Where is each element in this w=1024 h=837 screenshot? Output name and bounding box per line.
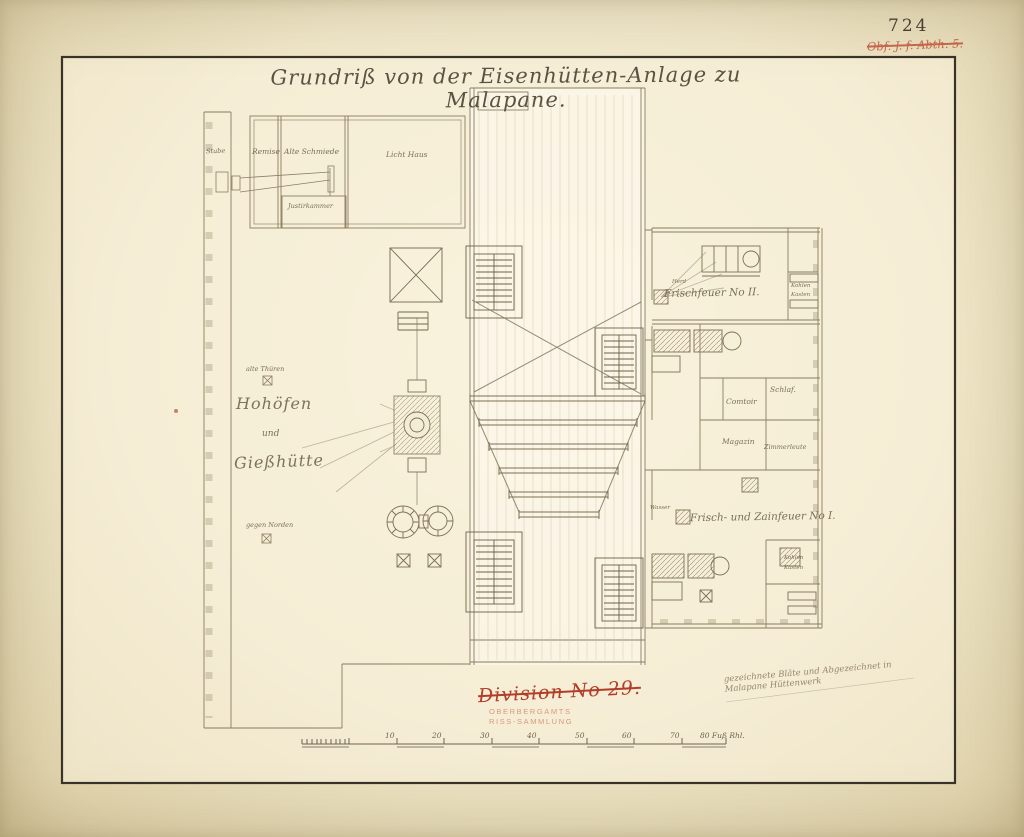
room-label-zimmerleute: Zimmerleute — [764, 444, 806, 451]
stamp-line-1: OBERBERGAMTS — [489, 707, 573, 717]
scale-tick-50: 50 — [575, 731, 585, 740]
room-label-magazin: Magazin — [722, 438, 755, 446]
room-label-und: und — [262, 430, 279, 439]
archive-stamp: OBERBERGAMTS RISS-SAMMLUNG — [489, 707, 573, 727]
scale-tick-30: 30 — [480, 731, 490, 740]
scale-bar — [302, 738, 726, 747]
grate-blocks — [466, 246, 643, 628]
room-label-justirkammer: Justirkammer — [288, 203, 333, 210]
scale-tick-20: 20 — [432, 731, 442, 740]
room-label-stube: Stube — [206, 148, 225, 155]
room-label-kohlen-top: Kohlen — [791, 284, 810, 290]
room-label-alte-thueren: alte Thüren — [246, 366, 284, 373]
drawing-title: Grundriß von der Eisenhütten-Anlage zu M… — [248, 62, 764, 114]
room-label-comtoir: Comtoir — [726, 398, 757, 406]
room-label-kasten-top: Kasten — [791, 293, 810, 299]
room-label-schlaf: Schlaf. — [770, 386, 796, 394]
scale-tick-10: 10 — [385, 731, 395, 740]
scale-tick-40: 40 — [527, 731, 537, 740]
top-left-rooms — [250, 116, 465, 228]
archive-number: 724 — [888, 16, 929, 36]
room-label-giesshuette: Gießhütte — [234, 452, 325, 471]
scale-end-label: 80 Fuß Rhl. — [700, 731, 745, 740]
cupola-furnaces — [387, 506, 453, 567]
room-label-kohlen-bottom: Kohlen — [784, 556, 803, 562]
red-ink-speck — [174, 409, 178, 413]
room-label-hohoefen: Hohöfen — [236, 396, 312, 412]
scale-tick-70: 70 — [670, 731, 680, 740]
room-label-alte-schmiede: Alte Schmiede — [284, 148, 339, 156]
room-label-licht-haus: Licht Haus — [386, 151, 428, 159]
room-label-remise: Remise — [252, 148, 280, 156]
room-label-frischfeuer-1: Frisch- und Zainfeuer No I. — [690, 511, 836, 524]
stair-block — [390, 248, 442, 330]
smithy-mechanism-sketch — [216, 166, 334, 196]
room-label-gegen-norden: gegen Norden — [246, 522, 293, 529]
room-label-herd: Herd — [672, 280, 686, 286]
room-label-wasser: Wasser — [650, 506, 670, 512]
scale-tick-60: 60 — [622, 731, 632, 740]
room-label-frischfeuer-2: Frischfeuer No II. — [664, 287, 760, 299]
drawing-sheet: 724 Obf. J. f. Abth. 5. Grundriß von der… — [0, 0, 1024, 837]
room-label-kasten-bottom: Kasten — [784, 566, 803, 572]
stamp-line-2: RISS-SAMMLUNG — [489, 717, 573, 727]
beam-truss-structure — [470, 300, 645, 519]
blast-furnace-detail — [302, 318, 440, 505]
